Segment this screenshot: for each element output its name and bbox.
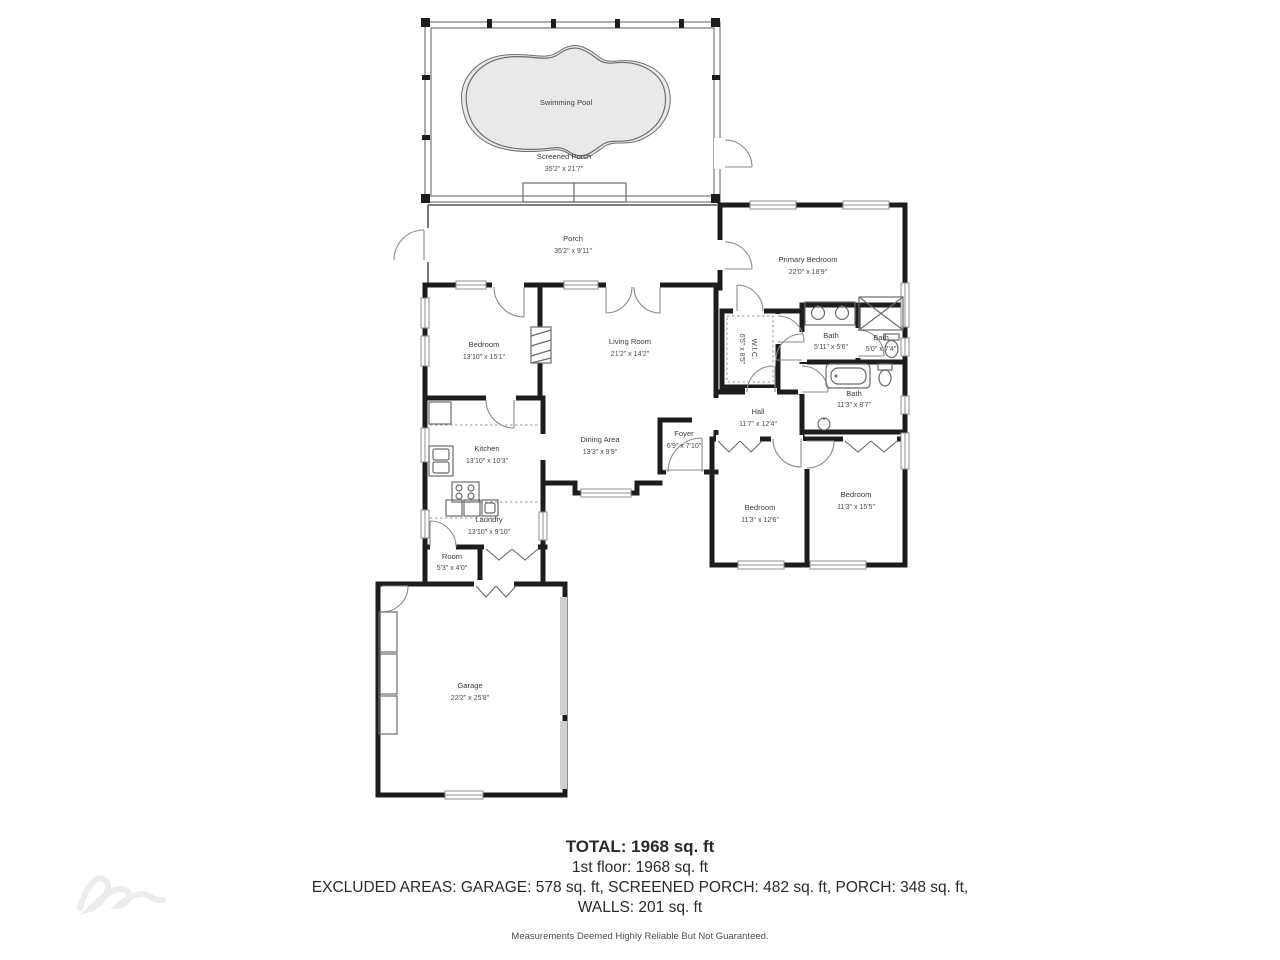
label-screened-porch: Screened Porch	[537, 152, 591, 161]
kitchen-sink	[429, 446, 453, 476]
dims-bedroom-mid: 11'3" x 12'6"	[741, 517, 779, 524]
label-bedroom-left: Bedroom	[469, 340, 500, 349]
label-garage: Garage	[457, 681, 482, 690]
excluded-areas: EXCLUDED AREAS: GARAGE: 578 sq. ft, SCRE…	[0, 878, 1280, 898]
dims-dining-area: 13'3" x 9'9"	[583, 449, 618, 456]
shower	[859, 297, 903, 330]
wic-shelving	[727, 316, 773, 382]
label-dining-area: Dining Area	[580, 435, 620, 444]
label-bath-hall: Bath	[846, 389, 862, 398]
label-hall: Hall	[751, 407, 764, 416]
dims-primary-bedroom: 22'0" x 18'9"	[789, 269, 828, 276]
dims-kitchen: 13'10" x 10'3"	[466, 458, 509, 465]
dims-living-room: 21'2" x 14'2"	[611, 351, 650, 358]
label-swimming-pool: Swimming Pool	[540, 98, 593, 107]
dims-wic: 6'5" x 8'5"	[738, 334, 745, 365]
label-bedroom-right: Bedroom	[841, 490, 872, 499]
first-floor-area: 1st floor: 1968 sq. ft	[0, 858, 1280, 878]
dims-porch: 35'2" x 9'11"	[554, 248, 592, 255]
label-living-room: Living Room	[609, 337, 651, 346]
dims-bath-vanity: 5'11" x 5'6"	[814, 344, 848, 351]
total-area: TOTAL: 1968 sq. ft	[0, 836, 1280, 858]
label-primary-bedroom: Primary Bedroom	[778, 255, 837, 264]
garage-fixtures	[379, 597, 567, 789]
label-room: Room	[442, 552, 462, 561]
label-foyer: Foyer	[674, 429, 694, 438]
floorplan-page: Swimming Pool Screened Porch 35'2" x 21'…	[0, 0, 1280, 960]
label-kitchen: Kitchen	[474, 444, 499, 453]
dims-bedroom-left: 13'10" x 15'1"	[463, 354, 506, 361]
fireplace	[531, 327, 551, 363]
dims-bath-shower: 5'0" x 7'4"	[866, 346, 897, 353]
door-gaps	[430, 240, 897, 589]
porch-structure	[394, 205, 717, 285]
label-bedroom-mid: Bedroom	[745, 503, 776, 512]
garage-door-panel	[560, 721, 567, 789]
floorplan-drawing: Swimming Pool Screened Porch 35'2" x 21'…	[0, 0, 1280, 960]
disclaimer: Measurements Deemed Highly Reliable But …	[0, 931, 1280, 942]
garage-door-panel	[560, 597, 567, 715]
porch-steps	[523, 183, 626, 202]
summary-footer: TOTAL: 1968 sq. ft 1st floor: 1968 sq. f…	[0, 836, 1280, 942]
label-laundry: Laundry	[475, 515, 503, 524]
bathtub	[826, 364, 870, 388]
toilet-hall-bath	[878, 364, 892, 386]
dims-laundry: 13'10" x 9'10"	[468, 529, 511, 536]
walls-area: WALLS: 201 sq. ft	[0, 898, 1280, 918]
sink-hall-bath	[818, 418, 830, 430]
dims-foyer: 6'9" x 7'10"	[667, 443, 702, 450]
dims-room: 5'3" x 4'0"	[437, 565, 468, 572]
label-porch: Porch	[563, 234, 583, 243]
dims-screened-porch: 35'2" x 21'7"	[545, 166, 584, 173]
dims-bedroom-right: 11'3" x 15'5"	[837, 504, 875, 511]
label-bath-vanity: Bath	[823, 331, 839, 340]
stove	[452, 482, 479, 502]
dims-hall: 11'7" x 12'4"	[739, 421, 777, 428]
dims-garage: 22'2" x 25'8"	[451, 695, 490, 702]
dims-bath-hall: 11'3" x 8'7"	[837, 402, 871, 409]
label-bath-shower: Bath	[873, 333, 889, 342]
label-wic: W.I.C.	[750, 339, 759, 360]
